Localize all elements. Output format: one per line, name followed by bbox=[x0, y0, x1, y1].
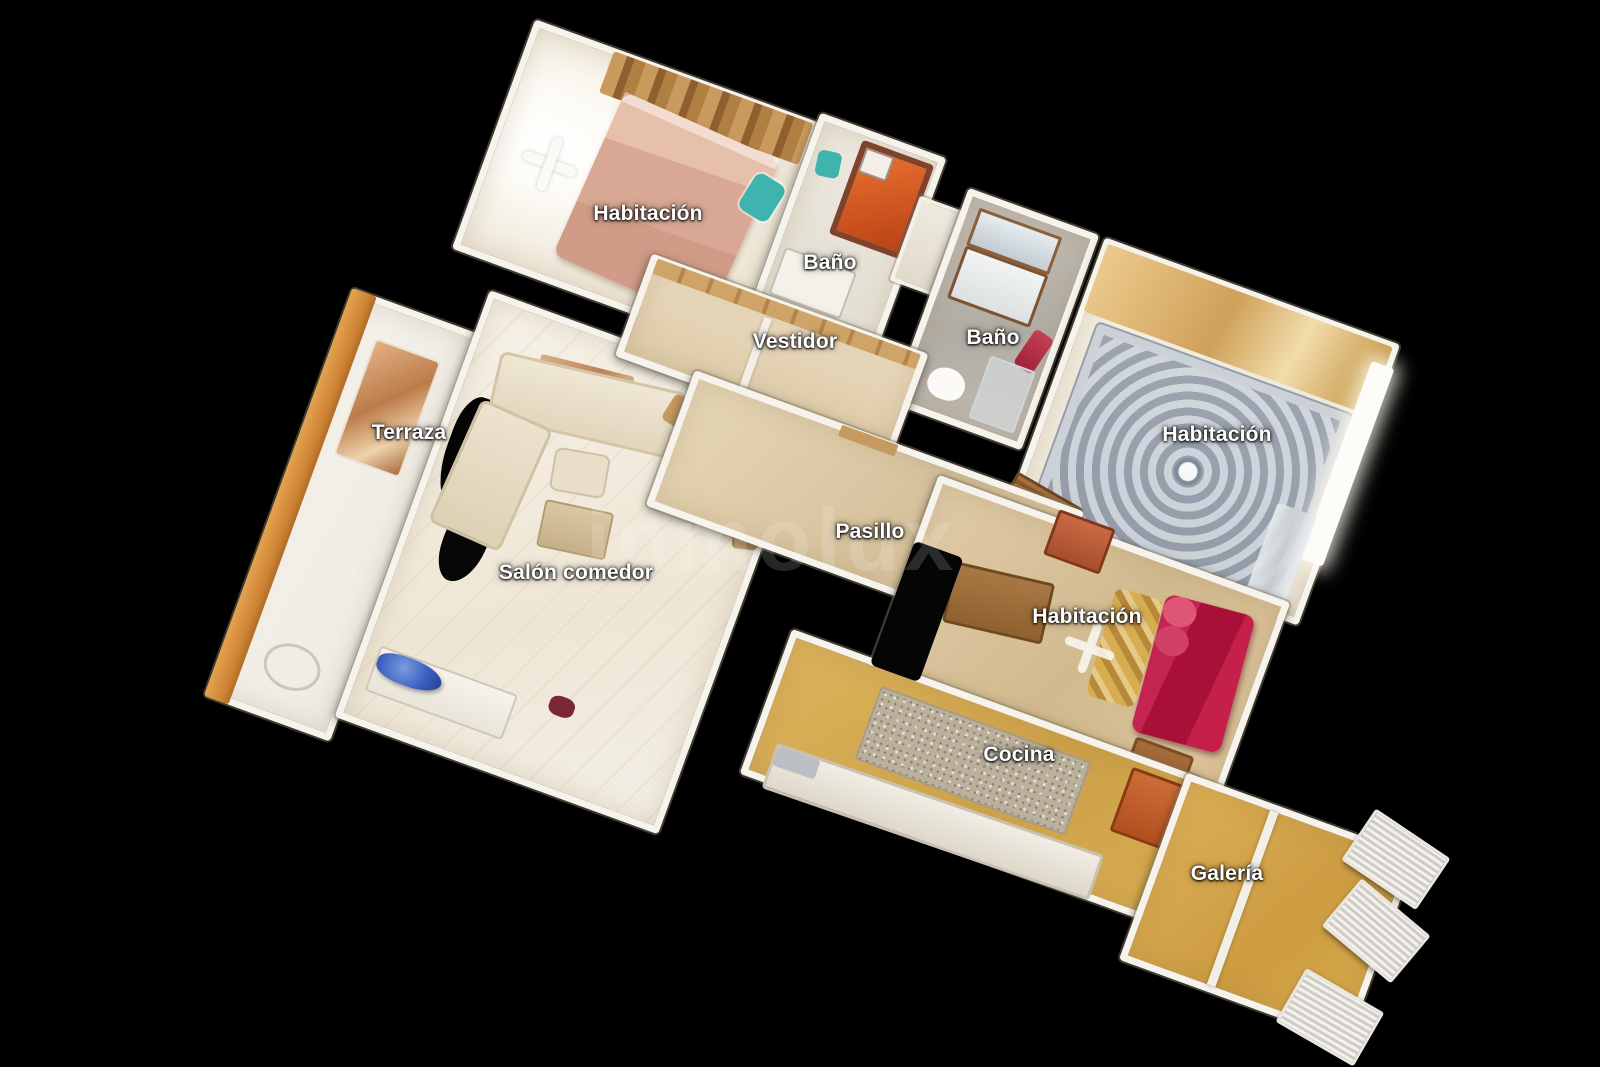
dollhouse-canvas[interactable]: inmolux Habitación Baño Vestidor Baño Ha… bbox=[0, 0, 1600, 1067]
shower-enclosure bbox=[968, 355, 1036, 433]
terrace-table bbox=[261, 639, 324, 694]
window-shutter bbox=[1275, 968, 1384, 1067]
coffee-table bbox=[536, 499, 614, 561]
chaise-sofa bbox=[428, 398, 554, 552]
partition-wall bbox=[1207, 810, 1279, 987]
cushion bbox=[1152, 622, 1193, 660]
sink bbox=[772, 746, 820, 779]
pouf bbox=[548, 446, 611, 499]
desk bbox=[942, 561, 1055, 644]
floor-object bbox=[546, 693, 577, 721]
ceiling-fan bbox=[514, 128, 586, 200]
bathroom-stool bbox=[814, 149, 843, 179]
floorplan-3d[interactable] bbox=[35, 0, 1564, 1067]
toilet bbox=[921, 360, 973, 408]
blue-glass-art bbox=[373, 648, 446, 698]
sideboard bbox=[364, 645, 518, 740]
terrace-awning-edge bbox=[204, 288, 377, 705]
shower-fixture bbox=[858, 147, 895, 182]
partition-wall bbox=[739, 317, 772, 389]
